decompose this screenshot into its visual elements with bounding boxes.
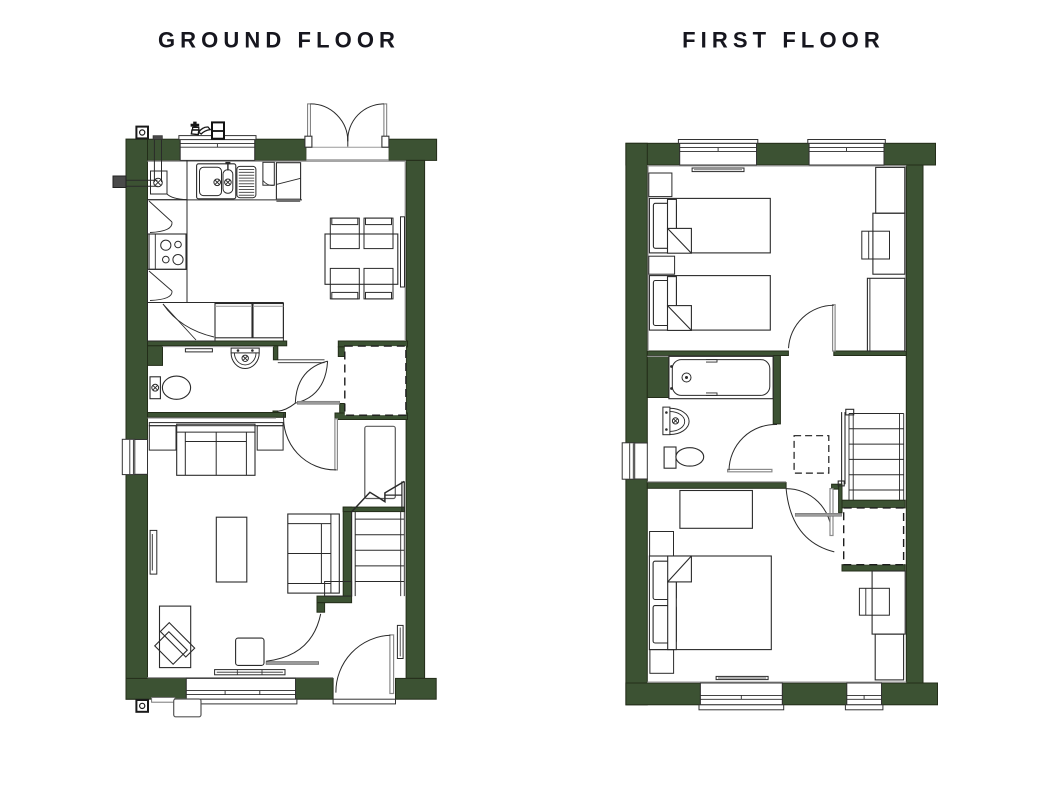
svg-text:FIRST FLOOR: FIRST FLOOR — [682, 28, 885, 53]
svg-text:GROUND FLOOR: GROUND FLOOR — [158, 28, 400, 53]
